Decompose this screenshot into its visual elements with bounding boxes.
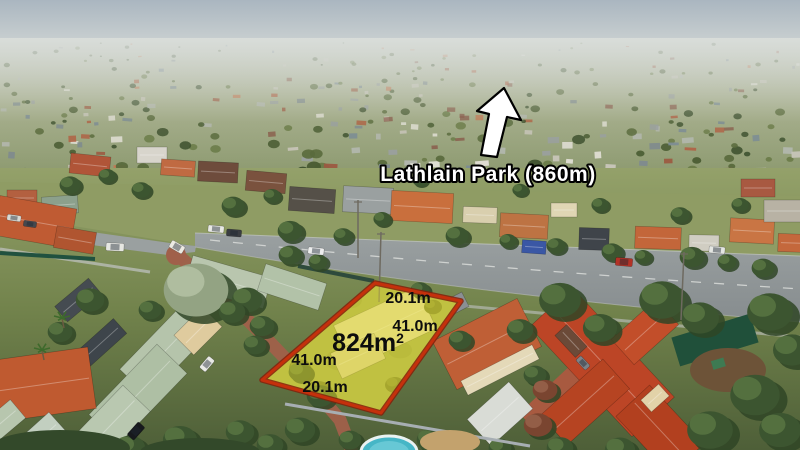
lot-measurement-bottom: 20.1m [302,379,347,396]
lot-area-value: 824m [332,329,396,357]
park-label: Lathlain Park (860m) [380,163,595,186]
lot-measurement-left: 41.0m [291,352,336,369]
lot-area-label: 824m2 [332,329,404,357]
lot-measurement-top: 20.1m [385,290,430,307]
aerial-photo: 20.1m 41.0m 824m2 41.0m 20.1m Lathlain P… [0,0,800,450]
lot-area-superscript: 2 [396,330,404,346]
